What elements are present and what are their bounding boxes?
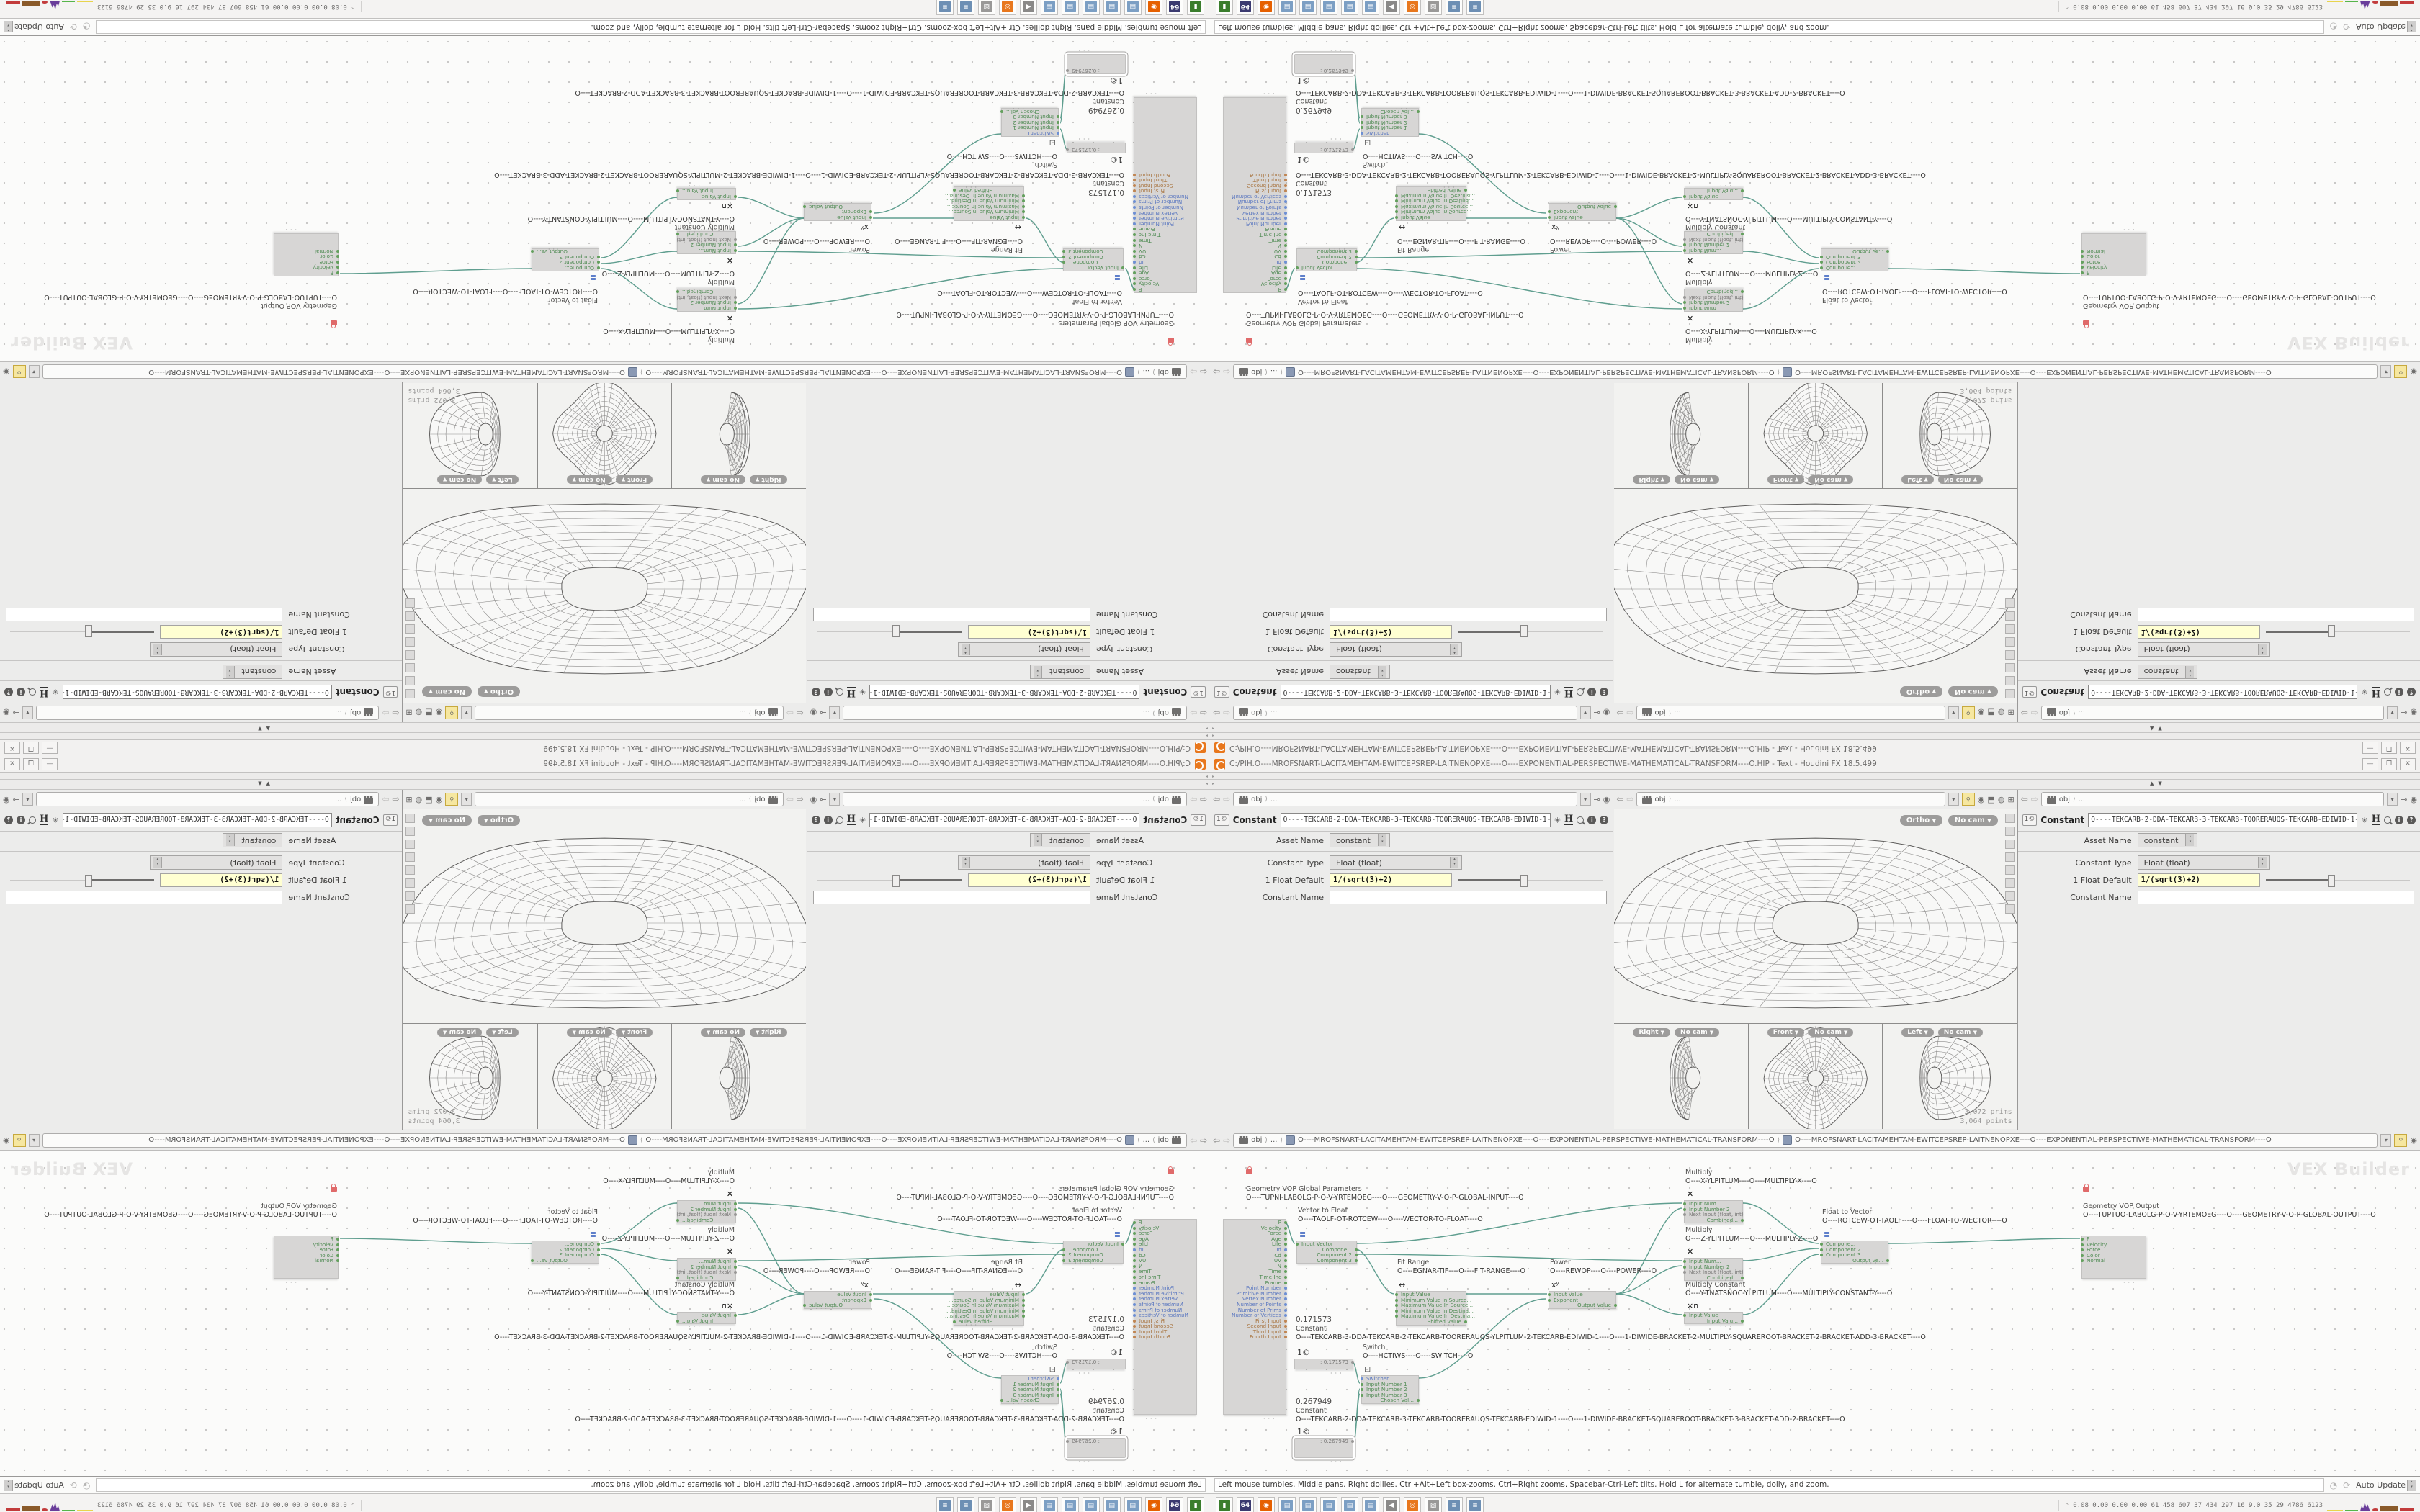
node-body[interactable]: : 0.171573	[1294, 1359, 1353, 1369]
taskbar-icon-file-stack-2[interactable]: ≡	[1466, 1497, 1484, 1512]
back-icon[interactable]: ⇦	[1213, 1136, 1220, 1145]
taskbar-icon-file-stack-2[interactable]: ≡	[936, 1497, 954, 1512]
info-icon[interactable]: i	[2395, 816, 2403, 824]
input-port[interactable]: Exponent	[1549, 210, 1615, 215]
viewport-left-view[interactable]: Left ▼ No cam ▼ 3,072 prims 3,064 points	[1883, 383, 2016, 488]
breadcrumb-node[interactable]: O----MROFSNART-LACITAMEHTAM-EWITCEPSREP-…	[148, 1136, 625, 1144]
spinner-icon[interactable]: ▴▾	[1034, 666, 1042, 678]
output-port[interactable]: Frame	[1224, 227, 1286, 233]
link-radio-icon[interactable]: ◉	[1603, 709, 1610, 717]
auto-update-dropdown[interactable]: Auto Update▴▾	[2356, 1480, 2416, 1491]
viewport-tool-icon[interactable]	[405, 611, 415, 621]
taskbar-icon-notepad-1[interactable]: ▤	[1124, 1497, 1142, 1512]
spinner-icon[interactable]: ▴▾	[4, 22, 13, 33]
constant-type-dropdown[interactable]: Float (float)▴▾	[958, 855, 1090, 870]
input-port[interactable]: Input Number 3	[1002, 114, 1058, 120]
network-breadcrumb[interactable]: obj ⟩ ... ⟩ O----MROFSNART-LACITAMEHTAM-…	[1233, 365, 2378, 379]
taskbar-icon-firefox[interactable]: ◉	[1145, 1497, 1162, 1512]
viewport-tool-icon[interactable]	[405, 891, 415, 901]
restore-button[interactable]: ❐	[2381, 742, 2397, 755]
float-default-slider[interactable]	[1458, 626, 1607, 638]
taskbar-icon-speaker[interactable]: ◀	[1020, 0, 1037, 16]
link-radio-icon[interactable]: ◉	[3, 368, 10, 376]
view-menu-pill[interactable]: Front ▼	[1767, 1028, 1804, 1037]
float-default-input[interactable]: 1/(sqrt(3)+2)	[1330, 873, 1452, 887]
input-port[interactable]: Input Num...	[678, 248, 735, 253]
breadcrumb-node[interactable]: O----MROFSNART-LACITAMEHTAM-EWITCEPSREP-…	[1795, 1136, 2272, 1144]
back-icon[interactable]: ⇦	[2021, 795, 2028, 804]
path-dropdown-button[interactable]: ▾	[2380, 1134, 2391, 1147]
link-radio-icon[interactable]: ◉	[1603, 796, 1610, 804]
output-port[interactable]: Number of Points	[1224, 205, 1286, 211]
input-port[interactable]: Input Number 1	[1002, 125, 1058, 131]
forward-icon[interactable]: ⇨	[1190, 795, 1197, 804]
input-port[interactable]: Normal	[2082, 248, 2146, 254]
node-name-field[interactable]: O----TEKCARB-2-DDA-TEKCARB-3-TEKCARB-TOO…	[869, 813, 1139, 827]
node-name-field[interactable]: O----TEKCARB-2-DDA-TEKCARB-3-TEKCARB-TOO…	[869, 685, 1139, 699]
slider-handle[interactable]	[892, 875, 900, 887]
back-icon[interactable]: ⇦	[1213, 795, 1220, 804]
main-viewport[interactable]: Ortho ▼ No cam ▼	[1614, 809, 2016, 1024]
auto-update-dropdown[interactable]: Auto Update▴▾	[4, 1480, 64, 1491]
taskbar-icon-image-viewer[interactable]: ▨	[1425, 1497, 1442, 1512]
taskbar-icon-file-stack-1[interactable]: ≡	[957, 0, 974, 16]
pin-icon[interactable]: ⊸	[1594, 796, 1600, 804]
input-port[interactable]: Velocity	[2082, 265, 2146, 271]
minimize-button[interactable]: —	[2362, 758, 2378, 770]
collapsed-toolbar-strip[interactable]: ▸ ▲▼	[1210, 722, 2420, 732]
node-body[interactable]: Input ValueInput Valu...	[677, 188, 736, 200]
taskbar-icon-notepad-1[interactable]: ▤	[1278, 0, 1296, 16]
refresh-icon[interactable]: ⟳	[2343, 23, 2350, 32]
input-port[interactable]: Force	[274, 259, 338, 265]
search-icon[interactable]	[1577, 816, 1584, 824]
breadcrumb-more[interactable]: ...	[1674, 796, 1681, 804]
node-body[interactable]: : 0.267949	[1294, 1438, 1353, 1458]
help-icon[interactable]: ?	[2407, 688, 2416, 696]
info-icon[interactable]: i	[1587, 688, 1596, 696]
output-port[interactable]: Cd	[1134, 254, 1196, 260]
viewport-tool-icon[interactable]	[2005, 676, 2015, 685]
view-menu-pill[interactable]: Right ▼	[750, 475, 787, 484]
taskbar-icon-notepad-5[interactable]: ▤	[1041, 1497, 1058, 1512]
search-icon[interactable]	[2384, 816, 2391, 824]
output-port[interactable]: Id	[1224, 259, 1286, 265]
path-dropdown-button[interactable]: ▾	[1948, 793, 1959, 806]
constant-name-input[interactable]	[2138, 891, 2414, 904]
input-port[interactable]: Input Value	[805, 215, 871, 220]
taskbar-icon-file-stack-2[interactable]: ≡	[936, 0, 954, 16]
output-port[interactable]: Number of Vertices	[1134, 194, 1196, 199]
taskbar-icon-image-viewer[interactable]: ▨	[978, 0, 995, 16]
output-port[interactable]: Number of Prims	[1224, 199, 1286, 205]
constant-type-dropdown[interactable]: Float (float)▴▾	[1330, 855, 1462, 870]
sphere-icon[interactable]: ◍	[416, 709, 423, 717]
camera-menu-pill[interactable]: No cam ▼	[701, 1028, 745, 1037]
highlight-bulb-icon[interactable]: ⚲	[1962, 706, 1975, 719]
viewport-tool-icon[interactable]	[405, 814, 415, 823]
breadcrumb-more[interactable]: ...	[739, 709, 746, 717]
asset-name-dropdown[interactable]: constant▴▾	[1330, 665, 1390, 679]
output-port[interactable]: Force	[1134, 276, 1196, 282]
breadcrumb-more[interactable]: ...	[1674, 709, 1681, 717]
output-port[interactable]: Velocity	[1134, 282, 1196, 287]
input-port[interactable]: Minimum Value In Source...	[954, 210, 1023, 215]
output-port[interactable]: Second Input	[1224, 183, 1286, 189]
taskbar-icon-system-monitor[interactable]: ▮	[1187, 1497, 1204, 1512]
memory-icon[interactable]: ◔	[2330, 23, 2337, 32]
breadcrumb-root[interactable]: obj	[1654, 796, 1665, 804]
taskbar-icon-firefox[interactable]: ◉	[1145, 0, 1162, 16]
hscript-icon[interactable]: H	[40, 687, 48, 697]
camera-menu-pill[interactable]: No cam ▼	[422, 815, 472, 826]
search-icon[interactable]	[29, 816, 36, 824]
breadcrumb-node[interactable]: O----MROFSNART-LACITAMEHTAM-EWITCEPSREP-…	[645, 1136, 1122, 1144]
hscript-icon[interactable]: H	[1564, 687, 1573, 697]
output-port[interactable]: Second Input	[1134, 183, 1196, 189]
taskbar-icon-save-floppy[interactable]: 64	[1166, 1497, 1183, 1512]
slider-handle[interactable]	[892, 625, 900, 637]
breadcrumb[interactable]: obj ⟩ ...	[1233, 706, 1577, 720]
back-icon[interactable]: ⇦	[392, 795, 399, 804]
viewport-tool-icon[interactable]	[2005, 865, 2015, 875]
output-port[interactable]: Velocity	[1224, 282, 1286, 287]
back-icon[interactable]: ⇦	[1213, 708, 1220, 717]
spinner-icon[interactable]: ▴▾	[153, 644, 162, 655]
view-menu-pill[interactable]: Ortho ▼	[1900, 815, 1942, 826]
help-icon[interactable]: ?	[1600, 688, 1608, 696]
breadcrumb-root[interactable]: obj	[350, 709, 361, 717]
path-dropdown-button[interactable]: ▾	[29, 366, 40, 379]
input-port[interactable]: Input Number 2	[1362, 120, 1418, 125]
path-dropdown-button[interactable]: ▾	[1580, 793, 1591, 806]
link-radio-icon[interactable]: ◉	[2410, 368, 2417, 376]
collapsed-shelf-strip[interactable]: ▸	[0, 773, 1210, 780]
taskbar-icon-speaker[interactable]: ◀	[1383, 1497, 1400, 1512]
taskbar-icon-speaker[interactable]: ◀	[1383, 0, 1400, 16]
network-breadcrumb[interactable]: obj ⟩ ... ⟩ O----MROFSNART-LACITAMEHTAM-…	[1233, 1133, 2378, 1148]
main-viewport[interactable]: Ortho ▼ No cam ▼	[403, 809, 805, 1024]
strip-expand-icon[interactable]: ▸	[1212, 774, 1214, 779]
taskbar-icon-system-monitor[interactable]: ▮	[1216, 0, 1233, 16]
slider-handle[interactable]	[2328, 625, 2335, 637]
refresh-icon[interactable]: ⟳	[70, 1481, 77, 1490]
strip-expand-icon[interactable]: ▸	[1212, 781, 1214, 786]
network-breadcrumb[interactable]: obj ⟩ ... ⟩ O----MROFSNART-LACITAMEHTAM-…	[42, 365, 1187, 379]
forward-icon[interactable]: ⇨	[1190, 1136, 1197, 1145]
splitter-arrows-icon[interactable]: ▲▼	[254, 780, 270, 786]
breadcrumb-more[interactable]: ...	[739, 796, 746, 804]
output-port[interactable]: P	[1134, 287, 1196, 292]
viewport-right-toolbar[interactable]	[405, 814, 416, 914]
collapsed-shelf-strip[interactable]: ▸	[1210, 773, 2420, 780]
node-body[interactable]: PVelocityForceColorNormal	[274, 1236, 339, 1279]
breadcrumb-more[interactable]: ...	[1143, 796, 1150, 804]
output-port[interactable]: Fourth Input	[1134, 1334, 1196, 1340]
breadcrumb-root[interactable]: obj	[754, 796, 765, 804]
path-dropdown-button[interactable]: ▾	[830, 706, 841, 719]
viewport-tool-icon[interactable]	[405, 827, 415, 836]
view-menu-pill[interactable]: Right ▼	[1633, 475, 1670, 484]
output-port[interactable]: Time	[1224, 238, 1286, 243]
asset-name-dropdown[interactable]: constant▴▾	[1330, 833, 1390, 847]
forward-icon[interactable]: ⇨	[382, 708, 389, 717]
constant-name-input[interactable]	[1330, 891, 1607, 904]
output-port[interactable]: Frame	[1134, 227, 1196, 233]
input-port[interactable]: Component 2	[1821, 260, 1888, 266]
spinner-icon[interactable]: ▴▾	[2407, 1480, 2416, 1491]
breadcrumb[interactable]: obj ⟩ ...	[843, 706, 1187, 720]
breadcrumb-more[interactable]: ...	[1143, 368, 1150, 376]
link-radio-icon[interactable]: ◉	[810, 796, 817, 804]
forward-icon[interactable]: ⇨	[382, 795, 389, 804]
pin-icon[interactable]: ⊸	[13, 709, 19, 717]
float-default-slider[interactable]	[6, 874, 154, 886]
float-default-input[interactable]: 1/(sqrt(3)+2)	[160, 626, 282, 639]
restore-button[interactable]: ❐	[2381, 758, 2397, 770]
input-port[interactable]: Maximum Value In Source...	[954, 204, 1023, 210]
slider-handle[interactable]	[85, 625, 92, 637]
forward-icon[interactable]: ⇨	[1626, 708, 1633, 717]
float-default-slider[interactable]	[2266, 626, 2414, 638]
back-icon[interactable]: ⇦	[1616, 795, 1623, 804]
breadcrumb-node[interactable]: O----MROFSNART-LACITAMEHTAM-EWITCEPSREP-…	[1298, 1136, 1775, 1144]
breadcrumb-root[interactable]: obj	[2059, 709, 2070, 717]
breadcrumb-root[interactable]: obj	[1251, 1136, 1262, 1144]
gear-icon[interactable]: ✳	[1554, 688, 1561, 696]
link-radio-icon[interactable]: ◉	[2410, 709, 2417, 717]
view-menu-pill[interactable]: Ortho ▼	[478, 815, 520, 826]
viewport-tool-icon[interactable]	[405, 865, 415, 875]
view-menu-pill[interactable]: Ortho ▼	[1900, 686, 1942, 697]
output-port[interactable]: Primitive Number	[1134, 216, 1196, 222]
viewport-tool-icon[interactable]	[405, 624, 415, 634]
help-icon[interactable]: ?	[1600, 816, 1608, 824]
output-port[interactable]: Time Inc	[1134, 232, 1196, 238]
hscript-icon[interactable]: H	[1564, 815, 1573, 825]
minimize-button[interactable]: —	[42, 758, 58, 770]
breadcrumb-more[interactable]: ...	[1270, 1136, 1278, 1144]
viewport-tool-icon[interactable]	[405, 878, 415, 888]
asset-name-dropdown[interactable]: constant▴▾	[2138, 665, 2198, 679]
taskbar-icon-save-floppy[interactable]: 64	[1166, 0, 1183, 16]
constant-name-input[interactable]	[813, 891, 1090, 904]
viewport-tool-icon[interactable]	[405, 676, 415, 685]
back-icon[interactable]: ⇦	[1213, 368, 1220, 377]
taskbar-icon-save-floppy[interactable]: 64	[1237, 1497, 1254, 1512]
output-port[interactable]: Fourth Input	[1224, 1334, 1286, 1340]
path-dropdown-button[interactable]: ▾	[2387, 793, 2398, 806]
info-icon[interactable]: i	[17, 688, 25, 696]
cube-icon[interactable]: ⬒	[425, 796, 432, 804]
highlight-bulb-icon[interactable]: ⚲	[2394, 366, 2407, 379]
link-radio-icon[interactable]: ◉	[1978, 796, 1985, 804]
forward-icon[interactable]: ⇨	[1223, 795, 1230, 804]
hscript-icon[interactable]: H	[40, 815, 48, 825]
forward-icon[interactable]: ⇨	[1190, 708, 1197, 717]
node-body[interactable]: : 0.267949	[1067, 1438, 1126, 1458]
help-icon[interactable]: ?	[4, 816, 13, 824]
node-body[interactable]: Input ValueMinimum Value In Source...Max…	[954, 186, 1024, 221]
refresh-icon[interactable]: ⟳	[2343, 1481, 2350, 1490]
node-body[interactable]: PVelocityForceColorNormal	[2081, 233, 2146, 276]
float-default-slider[interactable]	[2266, 874, 2414, 886]
pin-icon[interactable]: ⊸	[820, 796, 826, 804]
network-canvas[interactable]: VEX Builder Geometry VOP Global Paramete…	[0, 36, 1210, 361]
back-icon[interactable]: ⇦	[2021, 708, 2028, 717]
input-port[interactable]: Normal	[274, 1258, 338, 1264]
close-button[interactable]: ✕	[2400, 742, 2416, 755]
highlight-bulb-icon[interactable]: ⚲	[13, 366, 26, 379]
spinner-icon[interactable]: ▴▾	[1450, 857, 1458, 868]
chevron-up-icon[interactable]: ⌃	[2065, 4, 2069, 10]
hscript-icon[interactable]: H	[847, 687, 856, 697]
input-port[interactable]: Normal	[2082, 1258, 2146, 1264]
output-port[interactable]: Life	[1134, 1241, 1196, 1247]
float-default-slider[interactable]	[813, 626, 962, 638]
layout-grid-icon[interactable]: ⊞	[405, 796, 412, 804]
hscript-icon[interactable]: H	[847, 815, 856, 825]
chevron-up-icon[interactable]: ⌃	[351, 4, 355, 10]
node-body[interactable]: PVelocityForceAgeLifeIdCdUVNTimeTime Inc…	[1223, 97, 1286, 293]
node-body[interactable]: Input Num...Input Number 2Next Input (fl…	[1684, 1258, 1743, 1281]
viewport-tool-icon[interactable]	[2005, 840, 2015, 849]
output-port[interactable]: Point Number	[1134, 221, 1196, 227]
camera-menu-pill[interactable]: No cam ▼	[1809, 475, 1853, 484]
constant-vop-icon[interactable]: 1©	[1214, 814, 1229, 826]
sphere-icon[interactable]: ◍	[1998, 709, 2005, 717]
input-port[interactable]: P	[2082, 270, 2146, 276]
viewport-tool-icon[interactable]	[405, 689, 415, 698]
taskbar-icon-firefox[interactable]: ◉	[1258, 0, 1275, 16]
layout-grid-icon[interactable]: ⊞	[405, 709, 412, 717]
camera-menu-pill[interactable]: No cam ▼	[1675, 1028, 1719, 1037]
camera-menu-pill[interactable]: No cam ▼	[437, 1028, 482, 1037]
input-port[interactable]: Input Vector	[1064, 265, 1123, 271]
path-dropdown-button[interactable]: ▾	[22, 793, 33, 806]
viewport-tool-icon[interactable]	[405, 663, 415, 672]
asset-name-dropdown[interactable]: constant▴▾	[1030, 833, 1090, 847]
output-port[interactable]: : 0.171573	[1067, 147, 1125, 153]
help-icon[interactable]: ?	[812, 816, 820, 824]
input-port[interactable]: Input Number 2	[1002, 120, 1058, 125]
node-body[interactable]: Input ValueMinimum Value In Source...Max…	[954, 1291, 1024, 1326]
taskbar-icon-speaker[interactable]: ◀	[1020, 1497, 1037, 1512]
restore-button[interactable]: ❐	[23, 758, 39, 770]
close-button[interactable]: ✕	[2400, 758, 2416, 770]
camera-menu-pill[interactable]: No cam ▼	[422, 686, 472, 697]
output-port[interactable]: Compone...	[1297, 260, 1356, 266]
help-icon[interactable]: ?	[812, 688, 820, 696]
viewport-tool-icon[interactable]	[2005, 827, 2015, 836]
breadcrumb-root[interactable]: obj	[350, 796, 361, 804]
chevron-up-icon[interactable]: ⌃	[351, 1502, 355, 1508]
link-radio-icon[interactable]: ◉	[1978, 709, 1985, 717]
input-port[interactable]: Exponent	[805, 210, 871, 215]
breadcrumb-more[interactable]: ...	[1143, 709, 1150, 717]
pin-icon[interactable]: ⊸	[13, 796, 19, 804]
path-dropdown-button[interactable]: ▾	[29, 1134, 40, 1147]
close-button[interactable]: ✕	[4, 742, 20, 755]
input-port[interactable]: Input Number 2	[678, 300, 735, 306]
output-port[interactable]: Third Input	[1134, 178, 1196, 184]
input-port[interactable]: Input Number 1	[1362, 125, 1418, 131]
output-port[interactable]: UV	[1134, 1258, 1196, 1264]
spinner-icon[interactable]: ▴▾	[2185, 666, 2194, 678]
output-port[interactable]: : 0.267949	[1295, 68, 1353, 73]
refresh-icon[interactable]: ⟳	[70, 23, 77, 32]
taskbar-icon-notepad-2[interactable]: ▤	[1103, 0, 1121, 16]
input-port[interactable]: Next Input (float, int)	[678, 237, 735, 243]
output-port[interactable]: Number of Prims	[1134, 199, 1196, 205]
input-port[interactable]: Next Input (float, int)	[1685, 237, 1742, 243]
viewport-tool-icon[interactable]	[2005, 814, 2015, 823]
viewport-right-toolbar[interactable]	[2004, 598, 2015, 698]
gear-icon[interactable]: ✳	[859, 688, 866, 696]
viewport-tool-icon[interactable]	[405, 840, 415, 849]
node-name-field[interactable]: O----TEKCARB-2-DDA-TEKCARB-3-TEKCARB-TOO…	[63, 685, 332, 699]
constant-type-dropdown[interactable]: Float (float)▴▾	[150, 642, 282, 657]
camera-menu-pill[interactable]: No cam ▼	[1948, 686, 1998, 697]
splitter-arrows-icon[interactable]: ▲▼	[2150, 726, 2166, 732]
highlight-bulb-icon[interactable]: ⚲	[13, 1134, 26, 1147]
viewport-right-view[interactable]: Right ▼ No cam ▼	[1614, 1024, 1748, 1129]
node-body[interactable]: Input Num...Input Number 2Next Input (fl…	[1684, 1200, 1743, 1223]
search-icon[interactable]	[836, 688, 843, 696]
gear-icon[interactable]: ✳	[1554, 816, 1561, 824]
taskbar-icon-notepad-5[interactable]: ▤	[1041, 0, 1058, 16]
input-port[interactable]: Input Number 3	[1362, 114, 1418, 120]
network-breadcrumb[interactable]: obj ⟩ ... ⟩ O----MROFSNART-LACITAMEHTAM-…	[42, 1133, 1187, 1148]
chevron-up-icon[interactable]: ⌃	[2065, 1502, 2069, 1508]
strip-expand-icon[interactable]: ▸	[1206, 726, 1208, 731]
link-radio-icon[interactable]: ◉	[2410, 796, 2417, 804]
back-icon[interactable]: ⇦	[1200, 708, 1207, 717]
highlight-bulb-icon[interactable]: ⚲	[2394, 1134, 2407, 1147]
input-port[interactable]: Force	[2082, 259, 2146, 265]
node-body[interactable]: Switcher I...Input Number 1Input Number …	[1001, 108, 1059, 137]
input-port[interactable]: Minimum Value In Source...	[1397, 210, 1466, 215]
spinner-icon[interactable]: ▴▾	[1378, 666, 1386, 678]
node-body[interactable]: PVelocityForceAgeLifeIdCdUVNTimeTime Inc…	[1223, 1219, 1286, 1415]
taskbar-icon-system-monitor[interactable]: ▮	[1187, 0, 1204, 16]
camera-menu-pill[interactable]: No cam ▼	[1675, 475, 1719, 484]
memory-icon[interactable]: ◔	[2330, 1481, 2337, 1490]
network-canvas[interactable]: VEX Builder Geometry VOP Global Paramete…	[1210, 36, 2420, 361]
view-menu-pill[interactable]: Front ▼	[616, 475, 653, 484]
cube-icon[interactable]: ⬒	[1987, 709, 1994, 717]
forward-icon[interactable]: ⇨	[1626, 795, 1633, 804]
highlight-bulb-icon[interactable]: ⚲	[1962, 793, 1975, 806]
output-port[interactable]: Number of Vertices	[1224, 194, 1286, 199]
input-port[interactable]: Compone...	[532, 265, 599, 271]
node-body[interactable]: Input ValueInput Valu...	[1684, 1312, 1743, 1324]
input-port[interactable]: Input Value	[954, 215, 1023, 220]
input-port[interactable]: Maximum Value In Destina...	[954, 193, 1023, 199]
output-port[interactable]: Vertex Number	[1224, 210, 1286, 216]
output-port[interactable]: UV	[1134, 248, 1196, 254]
spinner-icon[interactable]: ▴▾	[153, 857, 162, 868]
sphere-icon[interactable]: ◍	[416, 796, 423, 804]
spinner-icon[interactable]: ▴▾	[226, 666, 235, 678]
breadcrumb-root[interactable]: obj	[2059, 796, 2070, 804]
viewport-tool-icon[interactable]	[2005, 637, 2015, 647]
path-dropdown-button[interactable]: ▾	[2387, 706, 2398, 719]
network-canvas[interactable]: VEX Builder Geometry VOP Global Paramete…	[0, 1151, 1210, 1476]
float-default-input[interactable]: 1/(sqrt(3)+2)	[968, 873, 1090, 887]
float-default-input[interactable]: 1/(sqrt(3)+2)	[160, 873, 282, 887]
view-menu-pill[interactable]: Right ▼	[1633, 1028, 1670, 1037]
